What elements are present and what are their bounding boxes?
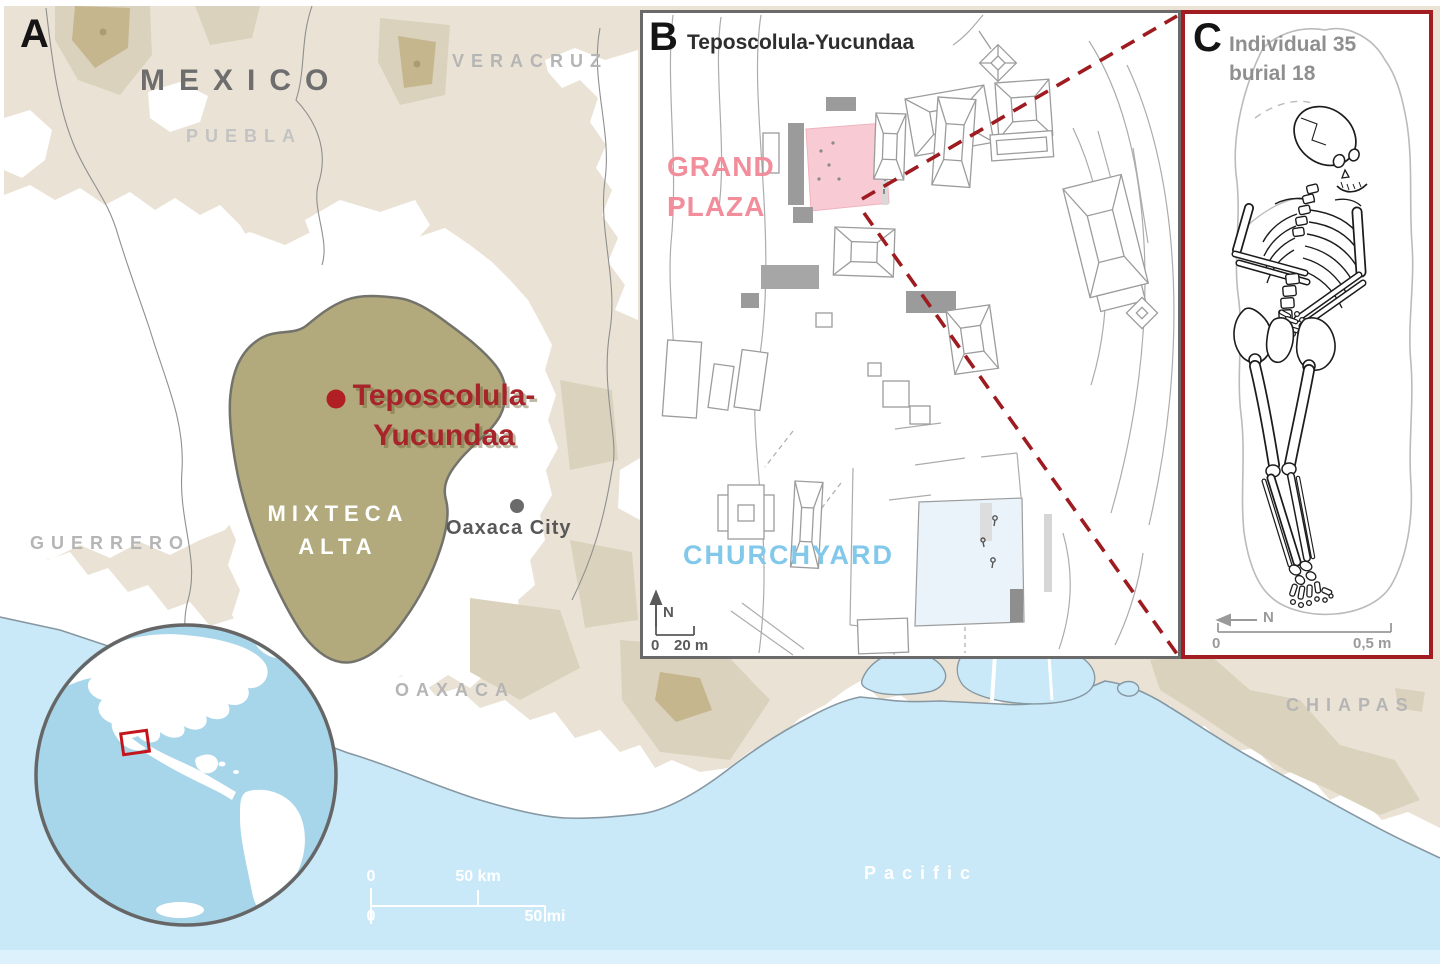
panel-b-site-plan: B Teposcolula-Yucundaa GRAND PLAZA CHURC… xyxy=(640,10,1181,659)
scale-mi-zero: 0 xyxy=(351,908,391,926)
site-label-line2: Yucundaa xyxy=(348,416,540,456)
city-dot xyxy=(510,499,524,513)
antilles xyxy=(219,762,226,767)
scale-zero-b: 0 xyxy=(651,638,659,655)
churchyard-block xyxy=(1010,589,1023,622)
site-label-line1: Teposcolula- xyxy=(348,376,540,416)
state-label-chiapas: CHIAPAS xyxy=(1286,696,1415,716)
panel-c-title: Individual 35 burial 18 xyxy=(1229,30,1356,88)
scale-km-zero: 0 xyxy=(351,868,391,886)
scale-value-b: 20 m xyxy=(674,638,708,655)
scale-bar-b xyxy=(656,626,694,635)
region-label-line2: ALTA xyxy=(252,530,424,563)
skeleton xyxy=(1234,94,1368,607)
ocean-shallow-band xyxy=(0,950,1440,964)
grand-plaza-label: GRAND PLAZA xyxy=(667,147,775,227)
panel-a-letter: A xyxy=(20,12,49,56)
churchyard-label: CHURCHYARD xyxy=(683,541,894,571)
state-label-oaxaca: OAXACA xyxy=(395,681,515,701)
scale-zero-c: 0 xyxy=(1212,636,1220,653)
burial-drawing xyxy=(1185,14,1429,655)
site-dot xyxy=(327,390,346,409)
north-arrow-b xyxy=(651,592,661,627)
panel-b-title: Teposcolula-Yucundaa xyxy=(687,31,914,54)
grand-plaza-line1: GRAND xyxy=(667,147,775,187)
antilles xyxy=(233,770,239,774)
state-label-veracruz: VERACRUZ xyxy=(452,52,608,72)
ocean-label: Pacific xyxy=(864,864,978,884)
pale-column xyxy=(1044,514,1052,592)
antarctica xyxy=(156,902,204,918)
panel-c-letter: C xyxy=(1193,16,1222,60)
scale-mi-label: 50 mi xyxy=(505,908,585,926)
state-label-guerrero: GUERRERO xyxy=(30,534,190,554)
scale-value-c: 0,5 m xyxy=(1353,636,1391,653)
figure-map: A MEXICO VERACRUZ PUEBLA GUERRERO OAXACA… xyxy=(0,0,1440,964)
panel-c-title-line1: Individual 35 xyxy=(1229,30,1356,59)
north-label-b: N xyxy=(663,605,674,622)
region-label-line1: MIXTECA xyxy=(252,497,424,530)
site-label: Teposcolula- Yucundaa xyxy=(348,376,540,456)
panel-c-burial: C Individual 35 burial 18 N 0 0,5 m xyxy=(1181,10,1433,659)
scale-bar-c xyxy=(1218,623,1391,632)
city-label: Oaxaca City xyxy=(446,517,572,539)
panel-c-title-line2: burial 18 xyxy=(1229,59,1356,88)
globe-inset xyxy=(36,625,336,925)
country-label: MEXICO xyxy=(140,64,342,97)
scale-km-label: 50 km xyxy=(438,868,518,886)
churchyard-strip xyxy=(980,503,992,541)
churchyard-area xyxy=(915,498,1024,626)
peak-dot xyxy=(100,29,107,36)
grand-plaza-line2: PLAZA xyxy=(667,187,775,227)
state-label-puebla: PUEBLA xyxy=(186,127,302,147)
panel-b-letter: B xyxy=(649,15,678,59)
region-label: MIXTECA ALTA xyxy=(252,497,424,563)
peak-dot xyxy=(414,61,421,68)
north-label-c: N xyxy=(1263,610,1274,627)
north-arrow-c xyxy=(1218,615,1257,625)
